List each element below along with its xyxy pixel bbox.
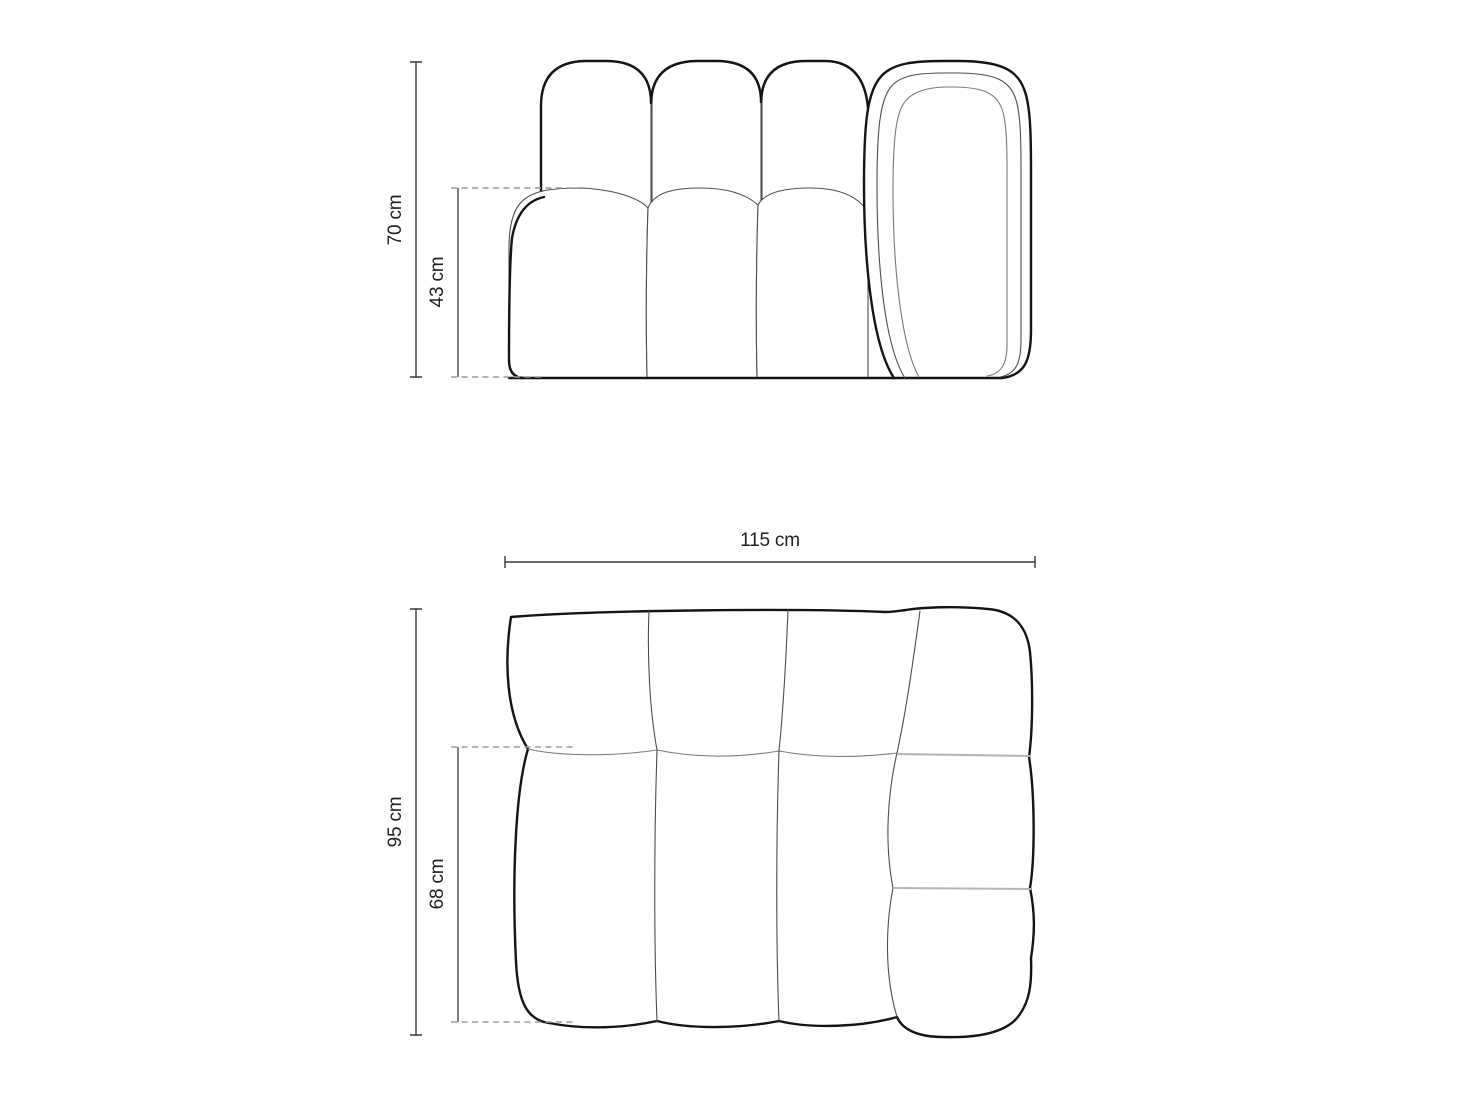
dimension-drawing-page: 70 cm 43 cm 115 cm: [0, 0, 1466, 1099]
top-backrest-divider-right: [779, 610, 788, 751]
top-armrest-divider-lower: [893, 888, 1031, 889]
front-view: 70 cm 43 cm: [385, 61, 1031, 378]
top-backrest-divider-left: [648, 610, 657, 750]
seat-cushion-middle: [646, 188, 758, 378]
top-armrest-divider-upper: [897, 754, 1031, 756]
dimension-label-68cm: 68 cm: [427, 859, 448, 910]
top-armrest-left-seam: [887, 611, 920, 1017]
top-outline-seat-left: [514, 749, 549, 1023]
top-backrest-seat-seam: [528, 749, 897, 757]
top-depth-dimension: 95 cm: [385, 609, 422, 1035]
top-outline-seat-front-scallops: [549, 1017, 897, 1027]
top-seat-divider-right: [777, 751, 779, 1021]
dimension-line-115cm: [505, 556, 1035, 568]
seat-cushion-left: [509, 188, 648, 378]
seat-cushion-right: [756, 188, 868, 378]
top-outline-backrest-left: [507, 617, 528, 749]
top-view: 115 cm 95 cm 68 cm: [385, 530, 1035, 1037]
dimension-label-115cm: 115 cm: [740, 530, 800, 551]
front-height-dimension: 70 cm: [385, 62, 422, 377]
top-seat-depth-dimension: 68 cm: [427, 747, 575, 1022]
top-outline-armrest-bottom: [897, 958, 1031, 1037]
sofa-technical-drawing: 70 cm 43 cm 115 cm: [0, 0, 1466, 1099]
top-outline-armrest-right: [886, 607, 1034, 958]
top-width-dimension: 115 cm: [505, 530, 1035, 568]
top-seat-divider-left: [655, 750, 657, 1021]
armrest-front: [864, 61, 1031, 378]
top-outline-backrest-top: [511, 610, 886, 617]
dimension-line-70cm: [410, 62, 422, 377]
dimension-label-43cm: 43 cm: [427, 257, 448, 308]
dimension-label-70cm: 70 cm: [385, 195, 406, 246]
dimension-line-95cm: [410, 609, 422, 1035]
dimension-label-95cm: 95 cm: [385, 797, 406, 848]
